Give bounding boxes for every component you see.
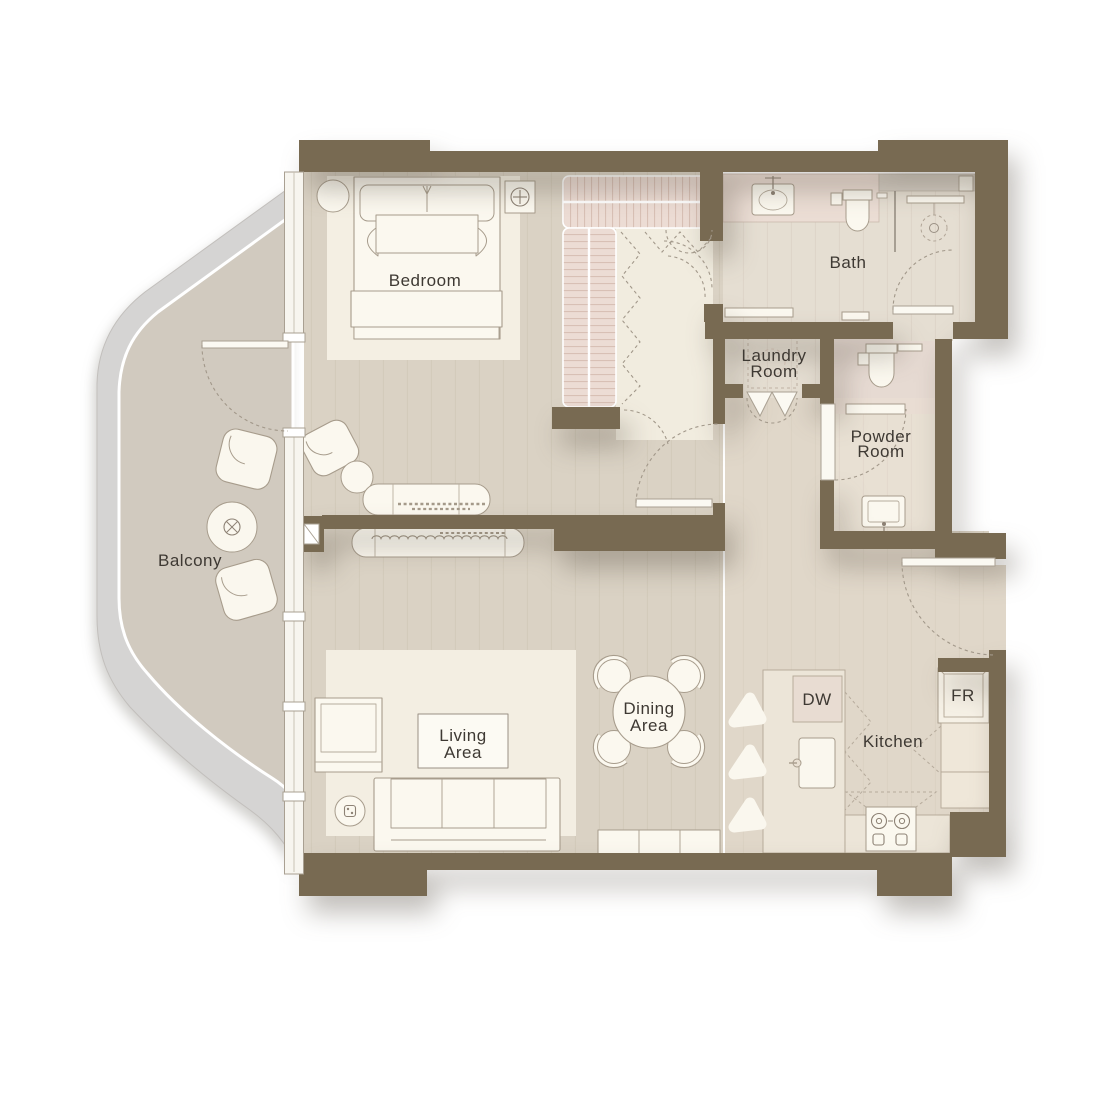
svg-text:FR: FR [951, 686, 975, 705]
svg-text:DW: DW [802, 690, 831, 709]
svg-text:Area: Area [444, 743, 482, 762]
svg-text:Bedroom: Bedroom [389, 271, 461, 290]
svg-text:Room: Room [857, 442, 904, 461]
svg-text:Bath: Bath [830, 253, 867, 272]
svg-text:Balcony: Balcony [158, 551, 222, 570]
svg-text:Kitchen: Kitchen [863, 732, 923, 751]
svg-text:Area: Area [630, 716, 668, 735]
svg-text:Room: Room [750, 362, 797, 381]
